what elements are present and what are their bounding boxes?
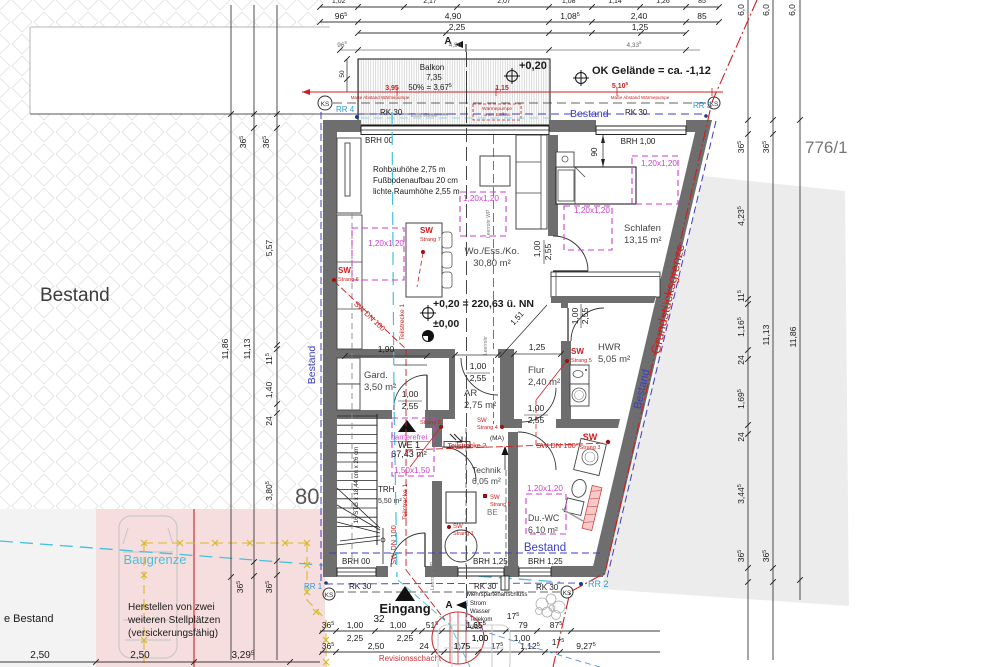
svg-text:67,43 m²: 67,43 m² bbox=[391, 449, 427, 459]
svg-text:50% = 3,675: 50% = 3,675 bbox=[408, 83, 452, 92]
svg-text:Revisionsschacht: Revisionsschacht bbox=[379, 654, 442, 663]
svg-text:2,25: 2,25 bbox=[347, 633, 364, 643]
svg-text:2,50: 2,50 bbox=[130, 650, 150, 661]
svg-text:(versickerungsfähig): (versickerungsfähig) bbox=[128, 628, 218, 639]
svg-text:SW: SW bbox=[583, 432, 598, 442]
svg-text:1,20x1,20: 1,20x1,20 bbox=[463, 194, 499, 203]
svg-text:Strang 5: Strang 5 bbox=[571, 358, 592, 364]
svg-text:Strang 4: Strang 4 bbox=[477, 425, 498, 431]
svg-text:5,05 m²: 5,05 m² bbox=[598, 354, 630, 365]
svg-text:6,0: 6,0 bbox=[761, 4, 771, 16]
svg-text:Eingang: Eingang bbox=[379, 601, 430, 616]
svg-text:SW: SW bbox=[420, 226, 433, 235]
svg-text:1,20x1,20: 1,20x1,20 bbox=[641, 159, 677, 168]
svg-text:Fußbodenaufbau 20 cm: Fußbodenaufbau 20 cm bbox=[373, 176, 458, 185]
svg-text:6,05 m²: 6,05 m² bbox=[472, 476, 501, 486]
svg-text:13,15 m²: 13,15 m² bbox=[624, 235, 662, 246]
svg-text:1,25: 1,25 bbox=[529, 342, 546, 352]
svg-text:1,20x1,20: 1,20x1,20 bbox=[527, 484, 563, 493]
svg-text:Technik: Technik bbox=[472, 465, 502, 475]
svg-text:RR 4: RR 4 bbox=[336, 105, 355, 114]
svg-text:BRH 1,00: BRH 1,00 bbox=[621, 137, 656, 146]
svg-text:2,50: 2,50 bbox=[368, 641, 385, 651]
svg-text:24: 24 bbox=[419, 641, 429, 651]
svg-text:Balkon: Balkon bbox=[420, 63, 444, 72]
svg-text:2,25: 2,25 bbox=[397, 633, 414, 643]
svg-text:AR: AR bbox=[464, 388, 477, 399]
svg-text:Gard.: Gard. bbox=[364, 370, 388, 381]
svg-text:1,25: 1,25 bbox=[632, 22, 649, 32]
svg-text:4,90: 4,90 bbox=[449, 42, 462, 49]
svg-text:1,00: 1,00 bbox=[470, 361, 487, 371]
svg-text:BE: BE bbox=[487, 508, 498, 517]
svg-text:Teilstrecke 1: Teilstrecke 1 bbox=[402, 484, 409, 521]
svg-text:Strang 6: Strang 6 bbox=[338, 277, 359, 283]
svg-text:1,40: 1,40 bbox=[264, 381, 274, 398]
svg-text:Flur: Flur bbox=[528, 365, 544, 376]
svg-text:Wärmepumpe: Wärmepumpe bbox=[482, 106, 512, 112]
svg-text:1,26: 1,26 bbox=[656, 0, 670, 5]
svg-text:11,13: 11,13 bbox=[761, 324, 771, 345]
svg-text:776/1: 776/1 bbox=[805, 138, 848, 157]
svg-text:11,86: 11,86 bbox=[220, 338, 230, 359]
svg-text:2,25: 2,25 bbox=[449, 22, 466, 32]
svg-text:A: A bbox=[445, 600, 452, 611]
svg-text:Strang 3: Strang 3 bbox=[580, 445, 601, 451]
svg-text:2,55: 2,55 bbox=[402, 401, 419, 411]
svg-text:Bestand: Bestand bbox=[524, 542, 566, 554]
svg-text:1,50x1,50: 1,50x1,50 bbox=[394, 466, 430, 475]
svg-text:Maße Abstand Wärmepumpe: Maße Abstand Wärmepumpe bbox=[351, 95, 410, 100]
svg-text:Wo./Ess./Ko.: Wo./Ess./Ko. bbox=[465, 246, 520, 257]
svg-text:TRH: TRH bbox=[378, 485, 395, 494]
svg-text:4,90: 4,90 bbox=[445, 11, 462, 21]
svg-text:Mehrspartenanschluss: Mehrspartenanschluss bbox=[467, 592, 527, 598]
svg-text:HWR: HWR bbox=[598, 342, 621, 353]
svg-text:BRH 00: BRH 00 bbox=[342, 557, 371, 566]
svg-text:85: 85 bbox=[697, 11, 707, 21]
svg-text:Baugrenze: Baugrenze bbox=[124, 552, 187, 567]
svg-text:Bestand: Bestand bbox=[40, 285, 110, 306]
svg-text:RK 30: RK 30 bbox=[625, 108, 648, 117]
svg-text:Herstellen von zwei: Herstellen von zwei bbox=[128, 602, 215, 613]
svg-text:RR 2: RR 2 bbox=[588, 579, 609, 589]
svg-text:3,50 m²: 3,50 m² bbox=[364, 382, 396, 393]
svg-text:1,00: 1,00 bbox=[402, 389, 419, 399]
svg-text:(MA): (MA) bbox=[490, 435, 504, 442]
svg-text:30,80 m²: 30,80 m² bbox=[473, 258, 511, 269]
svg-text:+0,20: +0,20 bbox=[519, 60, 547, 72]
svg-text:RR 1: RR 1 bbox=[304, 582, 323, 591]
svg-text:2,40 m²: 2,40 m² bbox=[528, 377, 560, 388]
svg-text:1,00: 1,00 bbox=[347, 620, 364, 630]
svg-text:1,90: 1,90 bbox=[378, 344, 395, 354]
svg-text:+0,20 = 220,63 ü. NN: +0,20 = 220,63 ü. NN bbox=[433, 298, 534, 310]
svg-text:SW DN 100: SW DN 100 bbox=[389, 525, 398, 565]
svg-text:SW DN 100: SW DN 100 bbox=[536, 441, 576, 450]
svg-text:RK 30: RK 30 bbox=[349, 582, 372, 591]
svg-text:KS: KS bbox=[321, 101, 330, 108]
svg-text:OK Gelände = ca. -1,12: OK Gelände = ca. -1,12 bbox=[592, 65, 711, 77]
svg-text:2,55: 2,55 bbox=[580, 307, 590, 324]
svg-text:SW: SW bbox=[453, 524, 463, 530]
svg-text:RK 30: RK 30 bbox=[380, 108, 403, 117]
svg-text:50: 50 bbox=[339, 70, 346, 78]
svg-text:11,13: 11,13 bbox=[242, 338, 252, 359]
svg-text:Strom: Strom bbox=[470, 601, 486, 607]
svg-text:1,00: 1,00 bbox=[472, 633, 489, 643]
svg-text:2,55: 2,55 bbox=[543, 243, 553, 260]
svg-text:Bestand: Bestand bbox=[570, 108, 609, 120]
svg-text:BRH 1,25: BRH 1,25 bbox=[528, 557, 563, 566]
svg-text:6,0: 6,0 bbox=[787, 4, 797, 16]
svg-text:Bestand: Bestand bbox=[306, 346, 318, 385]
svg-text:2,40: 2,40 bbox=[631, 11, 648, 21]
svg-text:24: 24 bbox=[736, 355, 746, 365]
svg-text:1,20x1,20: 1,20x1,20 bbox=[574, 206, 610, 215]
svg-text:Rohbauhöhe 2,75 m: Rohbauhöhe 2,75 m bbox=[373, 165, 446, 174]
svg-text:85: 85 bbox=[698, 0, 706, 5]
svg-text:unter Balkon: unter Balkon bbox=[484, 112, 511, 118]
svg-text:24: 24 bbox=[264, 416, 274, 426]
svg-text:80: 80 bbox=[295, 484, 319, 509]
svg-text:79: 79 bbox=[518, 620, 528, 630]
svg-text:2,07: 2,07 bbox=[497, 0, 511, 5]
svg-text:16 STG x 18,44 cm x 26 cm: 16 STG x 18,44 cm x 26 cm bbox=[353, 447, 360, 524]
svg-text:1,00: 1,00 bbox=[390, 620, 407, 630]
svg-text:Strang 7: Strang 7 bbox=[420, 237, 441, 243]
svg-text:2,75 m²: 2,75 m² bbox=[464, 400, 496, 411]
svg-text:SW: SW bbox=[571, 347, 584, 356]
svg-text:1,75: 1,75 bbox=[454, 641, 471, 651]
svg-text:Leerrohr WP: Leerrohr WP bbox=[486, 209, 492, 238]
svg-text:±0,00: ±0,00 bbox=[433, 318, 459, 330]
svg-text:RK 30: RK 30 bbox=[536, 583, 559, 592]
svg-text:Strang 8: Strang 8 bbox=[420, 420, 441, 426]
svg-text:1,00: 1,00 bbox=[532, 240, 542, 257]
svg-text:Schlafen: Schlafen bbox=[624, 223, 661, 234]
svg-text:Leerrohr WP: Leerrohr WP bbox=[430, 561, 436, 590]
svg-text:2,50: 2,50 bbox=[30, 650, 50, 661]
svg-text:1,00: 1,00 bbox=[570, 307, 580, 324]
svg-text:RR 3: RR 3 bbox=[693, 101, 712, 110]
svg-text:BRH 00: BRH 00 bbox=[365, 136, 394, 145]
svg-text:Wasser: Wasser bbox=[470, 609, 490, 615]
svg-text:SW: SW bbox=[490, 495, 500, 501]
svg-text:2,17: 2,17 bbox=[423, 0, 437, 5]
svg-text:lichte Raumhöhe 2,55 m: lichte Raumhöhe 2,55 m bbox=[373, 187, 460, 196]
svg-text:1,20x1,20: 1,20x1,20 bbox=[368, 239, 404, 248]
svg-text:2,55: 2,55 bbox=[470, 373, 487, 383]
svg-text:5,57: 5,57 bbox=[264, 239, 274, 256]
svg-text:BRH 1,25: BRH 1,25 bbox=[473, 557, 508, 566]
svg-text:2,55: 2,55 bbox=[528, 415, 545, 425]
svg-text:KS: KS bbox=[563, 590, 572, 597]
svg-text:90: 90 bbox=[590, 147, 599, 156]
svg-text:3,95: 3,95 bbox=[385, 85, 399, 92]
svg-text:Maße Abstand Wärmepumpe: Maße Abstand Wärmepumpe bbox=[611, 95, 670, 100]
svg-text:11,86: 11,86 bbox=[788, 326, 798, 347]
svg-text:RK 30: RK 30 bbox=[474, 582, 497, 591]
svg-text:SW: SW bbox=[338, 266, 351, 275]
svg-text:Strang 1: Strang 1 bbox=[453, 531, 474, 537]
svg-text:Du.-WC: Du.-WC bbox=[528, 513, 560, 523]
svg-text:1,00: 1,00 bbox=[528, 403, 545, 413]
svg-text:Leerrohr: Leerrohr bbox=[483, 336, 489, 355]
svg-text:KS: KS bbox=[325, 592, 334, 599]
svg-text:SW: SW bbox=[477, 418, 487, 424]
svg-text:1,15: 1,15 bbox=[495, 85, 509, 92]
svg-text:24: 24 bbox=[736, 432, 746, 442]
svg-text:7,35: 7,35 bbox=[426, 73, 442, 82]
svg-text:Teilstrecke 2: Teilstrecke 2 bbox=[448, 443, 487, 450]
svg-text:6,0: 6,0 bbox=[736, 4, 746, 16]
svg-text:32: 32 bbox=[373, 614, 385, 625]
svg-text:1,14: 1,14 bbox=[608, 0, 622, 5]
svg-text:Teilstrecke 1: Teilstrecke 1 bbox=[399, 304, 406, 341]
svg-text:weiteren Stellplätzen: weiteren Stellplätzen bbox=[127, 615, 220, 626]
svg-text:e Bestand: e Bestand bbox=[4, 613, 54, 625]
svg-text:5,50 m²: 5,50 m² bbox=[378, 498, 402, 505]
